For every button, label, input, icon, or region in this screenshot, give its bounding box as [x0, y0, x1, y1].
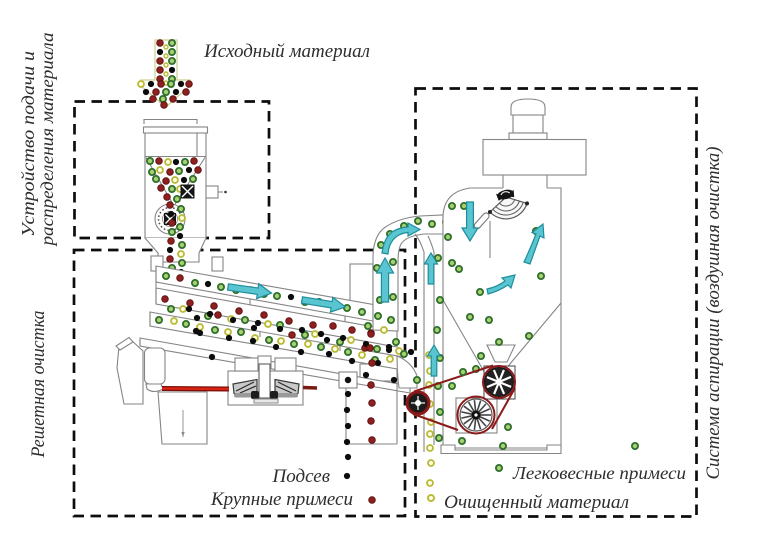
svg-text:распределения материала: распределения материала: [37, 32, 57, 247]
svg-text:Очищенный материал: Очищенный материал: [444, 492, 629, 513]
svg-text:Подсев: Подсев: [272, 466, 330, 487]
svg-text:Крупные примеси: Крупные примеси: [210, 489, 353, 510]
svg-text:Устройство подачи и: Устройство подачи и: [18, 51, 38, 237]
svg-text:Легковесные примеси: Легковесные примеси: [512, 463, 686, 483]
svg-text:Исходный материал: Исходный материал: [203, 41, 370, 62]
svg-text:Решетная очистка: Решетная очистка: [29, 311, 49, 459]
svg-text:Система аспирации (воздушная о: Система аспирации (воздушная очистка): [703, 147, 724, 480]
